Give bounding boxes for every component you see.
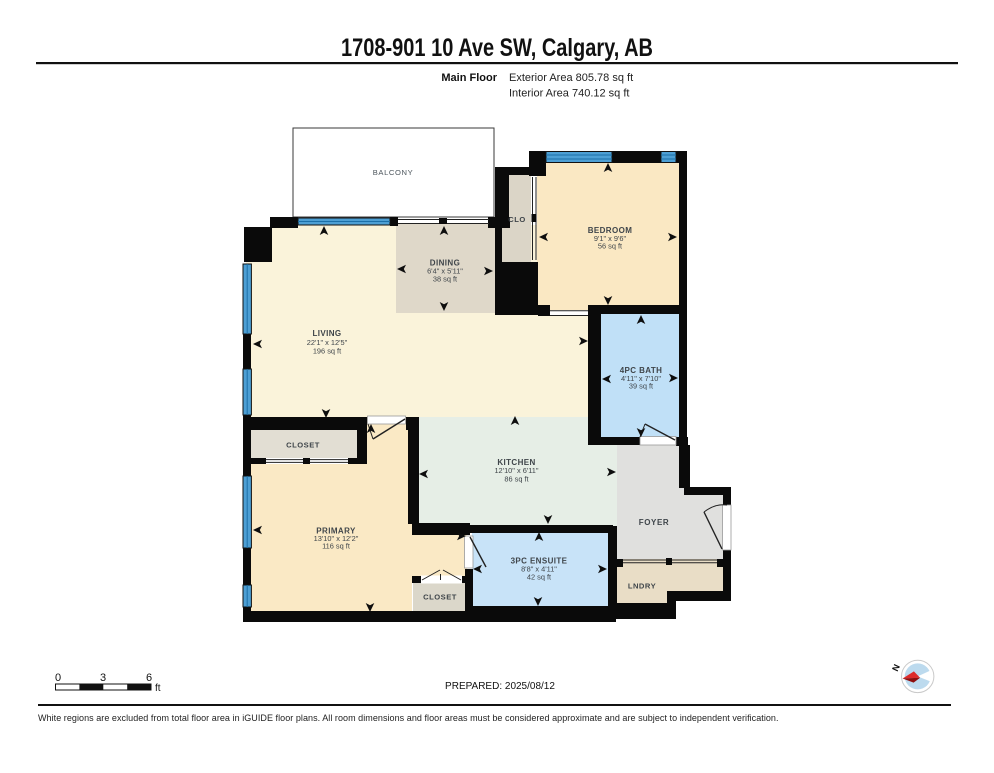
svg-text:196 sq ft: 196 sq ft xyxy=(313,347,341,356)
svg-text:LNDRY: LNDRY xyxy=(628,582,656,591)
svg-text:6: 6 xyxy=(146,672,152,684)
svg-text:42 sq ft: 42 sq ft xyxy=(527,573,551,582)
svg-text:CLOSET: CLOSET xyxy=(423,593,457,602)
svg-text:White regions are excluded fro: White regions are excluded from total fl… xyxy=(38,713,779,723)
svg-text:FOYER: FOYER xyxy=(639,518,670,527)
svg-text:LIVING: LIVING xyxy=(312,329,341,338)
svg-text:0: 0 xyxy=(55,672,61,684)
svg-text:3: 3 xyxy=(100,672,106,684)
svg-text:Main Floor: Main Floor xyxy=(441,72,497,84)
svg-text:39 sq ft: 39 sq ft xyxy=(629,382,653,391)
svg-text:38 sq ft: 38 sq ft xyxy=(433,275,457,284)
svg-text:Exterior Area 805.78 sq ft: Exterior Area 805.78 sq ft xyxy=(509,72,633,84)
svg-text:116 sq ft: 116 sq ft xyxy=(322,541,350,550)
svg-text:CLO: CLO xyxy=(508,215,526,224)
svg-text:BALCONY: BALCONY xyxy=(373,168,414,177)
svg-text:86 sq ft: 86 sq ft xyxy=(504,475,528,484)
svg-text:Interior Area 740.12 sq ft: Interior Area 740.12 sq ft xyxy=(509,88,629,100)
svg-text:1708-901 10 Ave SW, Calgary, A: 1708-901 10 Ave SW, Calgary, AB xyxy=(341,34,653,62)
svg-text:56 sq ft: 56 sq ft xyxy=(598,241,622,250)
svg-text:CLOSET: CLOSET xyxy=(286,441,320,450)
svg-text:ft: ft xyxy=(155,683,161,694)
svg-text:PREPARED: 2025/08/12: PREPARED: 2025/08/12 xyxy=(445,681,555,692)
